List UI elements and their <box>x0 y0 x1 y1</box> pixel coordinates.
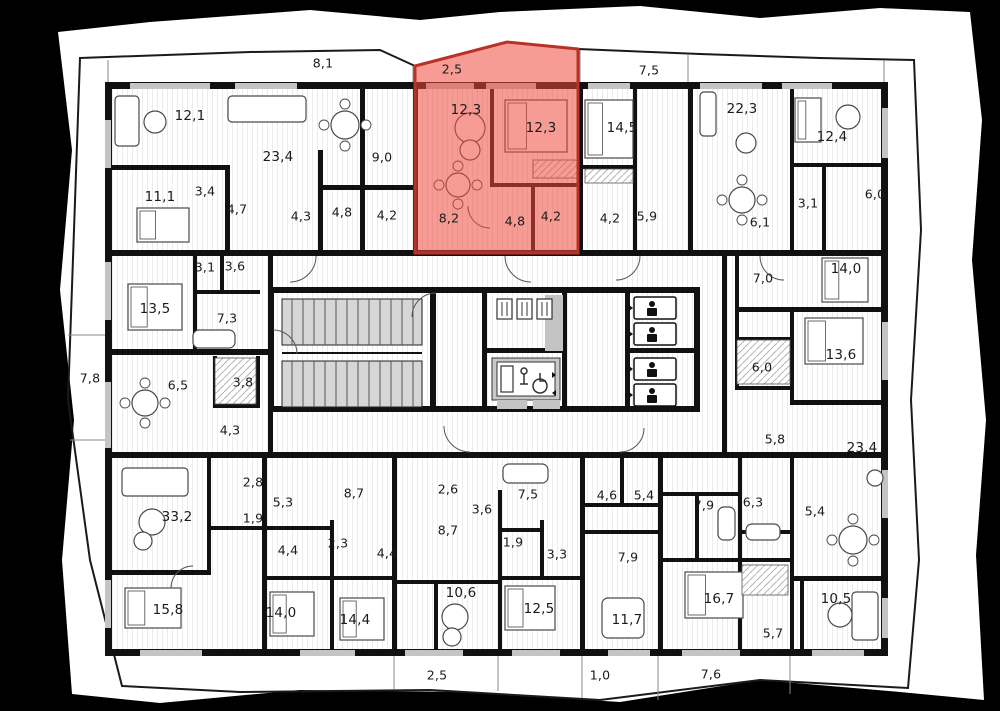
floorplan-drawing <box>0 0 1000 711</box>
floorplan-canvas: 8,12,57,512,123,411,13,44,74,34,89,04,21… <box>0 0 1000 711</box>
accessible-wc-icon <box>492 358 560 409</box>
stairwell <box>282 299 422 407</box>
trash-room-icons <box>497 299 552 319</box>
highlighted-unit-overlay[interactable] <box>415 42 578 253</box>
